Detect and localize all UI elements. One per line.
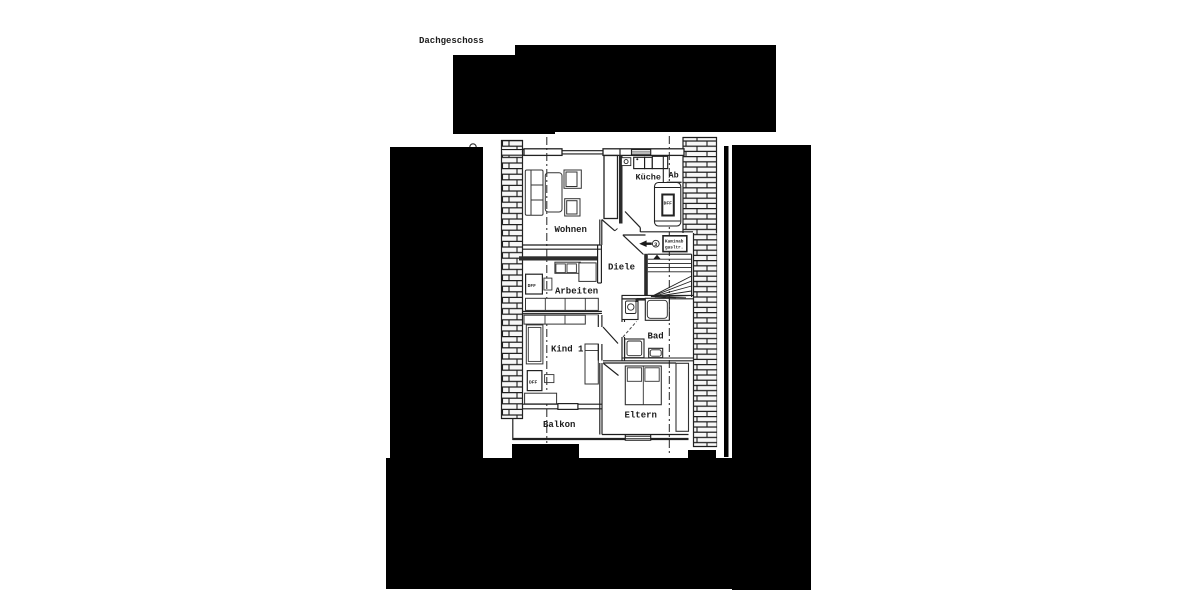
svg-text:Eltern: Eltern [625,411,657,421]
svg-text:Balkon: Balkon [543,420,575,430]
svg-text:Kind 1: Kind 1 [551,345,584,355]
svg-text:Diele: Diele [608,263,635,273]
svg-text:Küche: Küche [636,173,662,183]
svg-text:Ab: Ab [669,171,679,181]
svg-text:Wohnen: Wohnen [555,225,587,235]
svg-text:DFF: DFF [529,380,538,386]
svg-text:Dachgeschoss: Dachgeschoss [419,36,484,46]
svg-text:Bad: Bad [648,332,664,342]
svg-text:DFF: DFF [664,201,673,207]
svg-text:DFF: DFF [528,283,537,289]
svg-text:Arbeiten: Arbeiten [555,287,598,297]
svg-text:Kaminab: Kaminab [665,240,684,245]
svg-text:gasltr.: gasltr. [665,246,683,251]
